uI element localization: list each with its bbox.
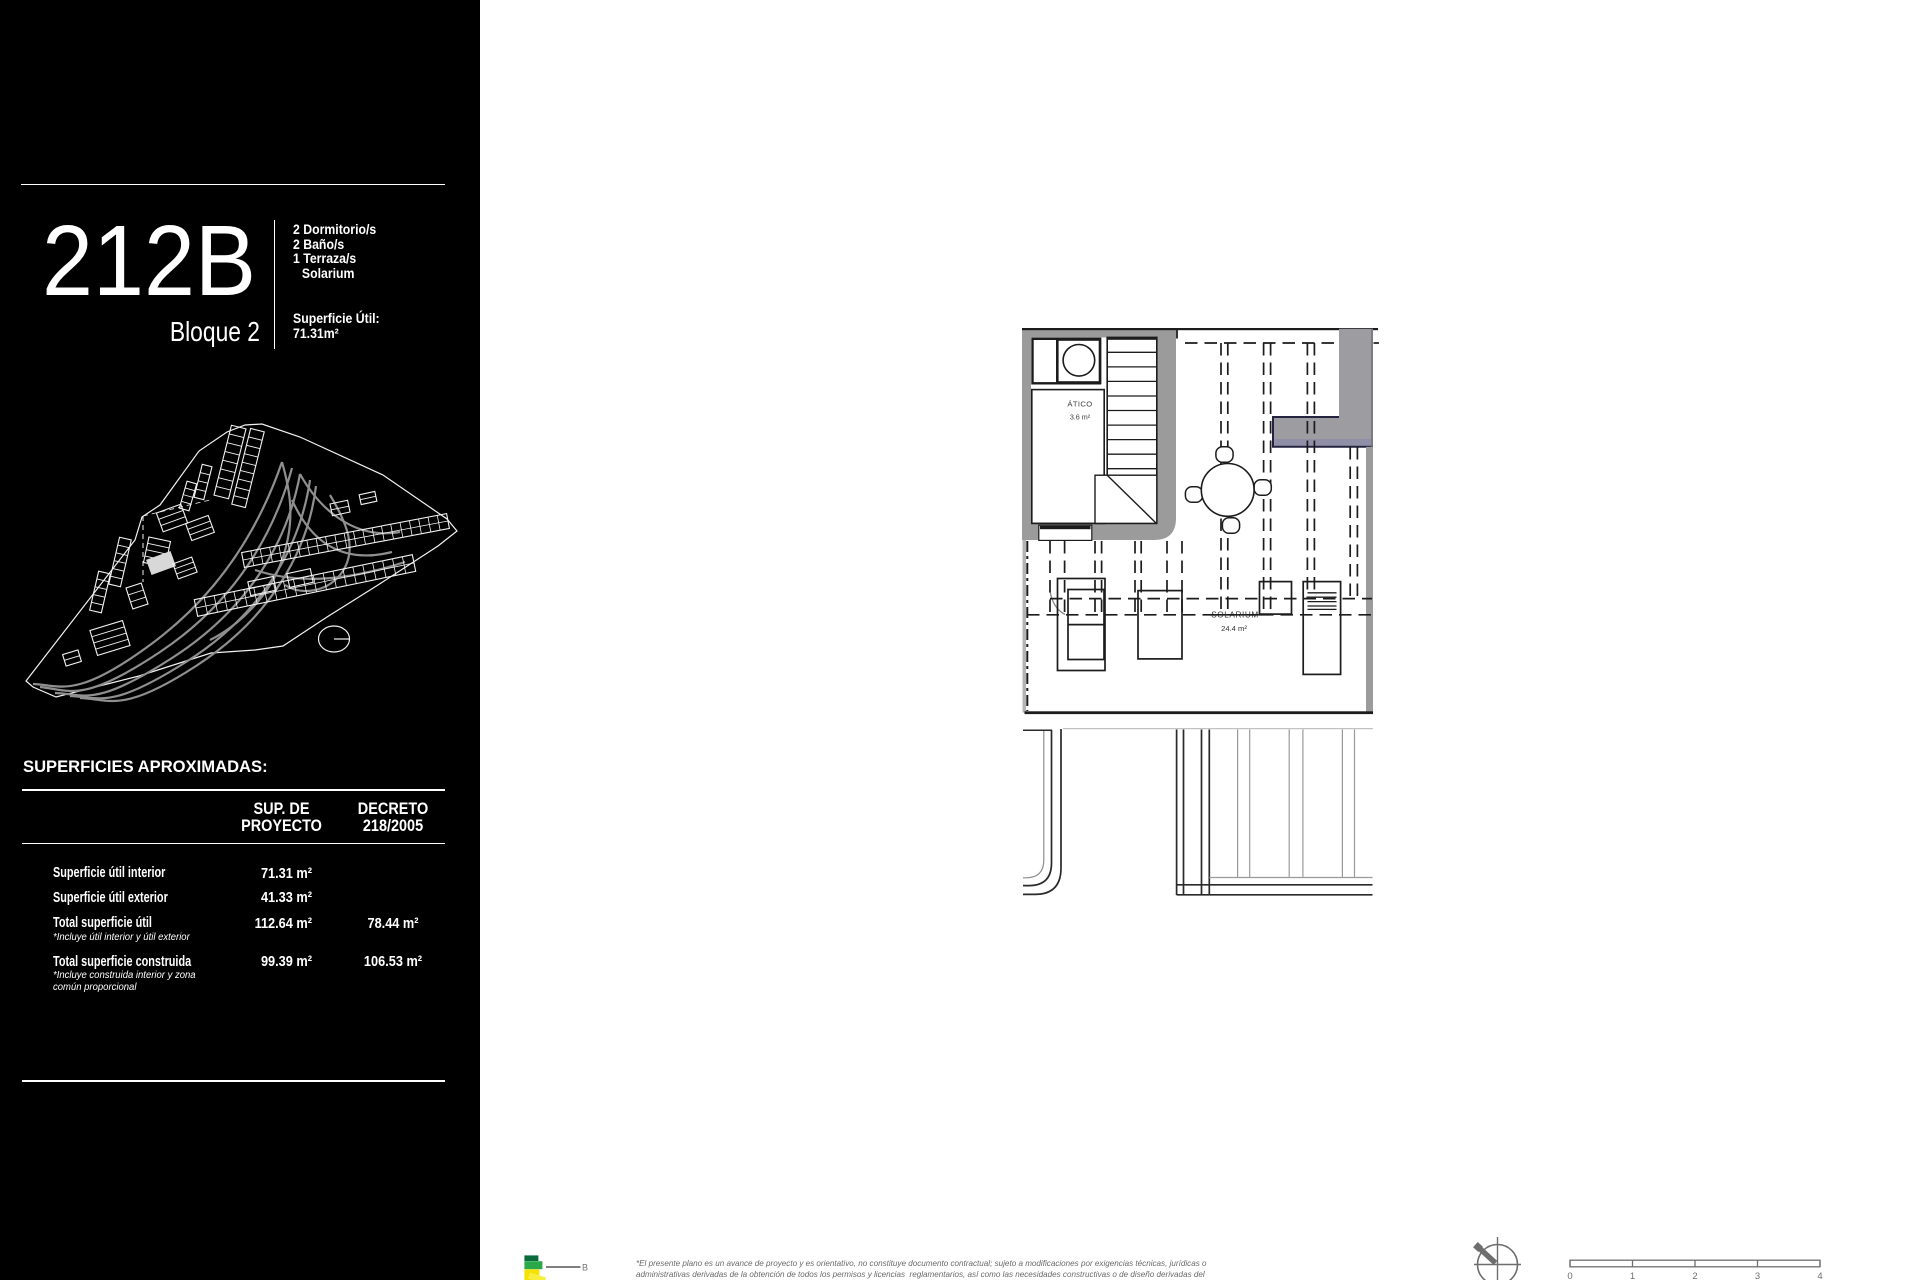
svg-text:1: 1 bbox=[1630, 1271, 1635, 1280]
svg-text:0: 0 bbox=[1567, 1271, 1572, 1280]
svg-text:3: 3 bbox=[1755, 1271, 1760, 1280]
svg-text:2: 2 bbox=[1692, 1271, 1697, 1280]
svg-text:4: 4 bbox=[1817, 1271, 1822, 1280]
svg-text:B: B bbox=[582, 1263, 588, 1273]
